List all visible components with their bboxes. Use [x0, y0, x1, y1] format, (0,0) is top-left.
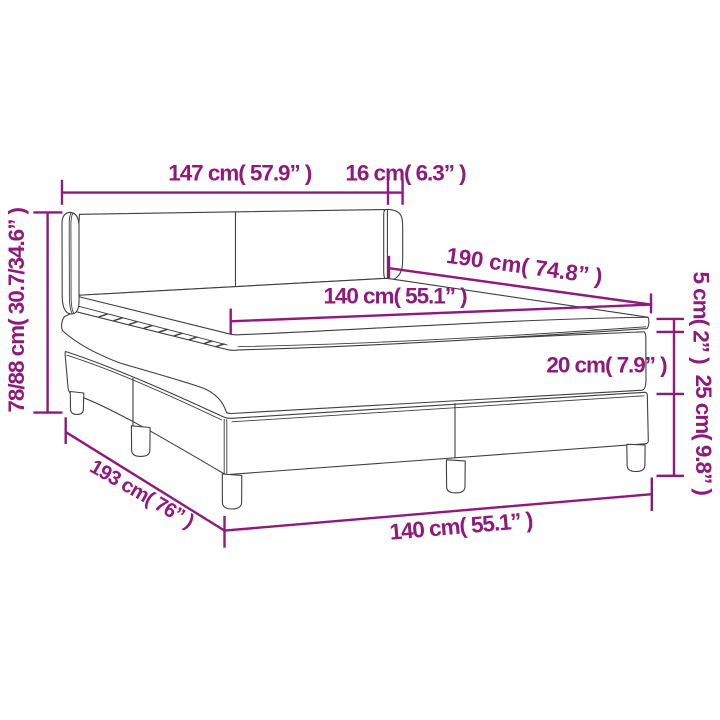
svg-text:78/88 cm( 30.7/34.6” ): 78/88 cm( 30.7/34.6” ) — [4, 207, 29, 412]
svg-text:5 cm( 2” ): 5 cm( 2” ) — [689, 271, 714, 364]
svg-text:140 cm( 55.1” ): 140 cm( 55.1” ) — [323, 284, 467, 309]
svg-text:20 cm( 7.9” ): 20 cm( 7.9” ) — [546, 353, 667, 378]
svg-text:25 cm( 9.8” ): 25 cm( 9.8” ) — [691, 375, 716, 496]
svg-text:147 cm( 57.9” ): 147 cm( 57.9” ) — [168, 160, 312, 185]
svg-text:16 cm( 6.3” ): 16 cm( 6.3” ) — [345, 160, 466, 185]
